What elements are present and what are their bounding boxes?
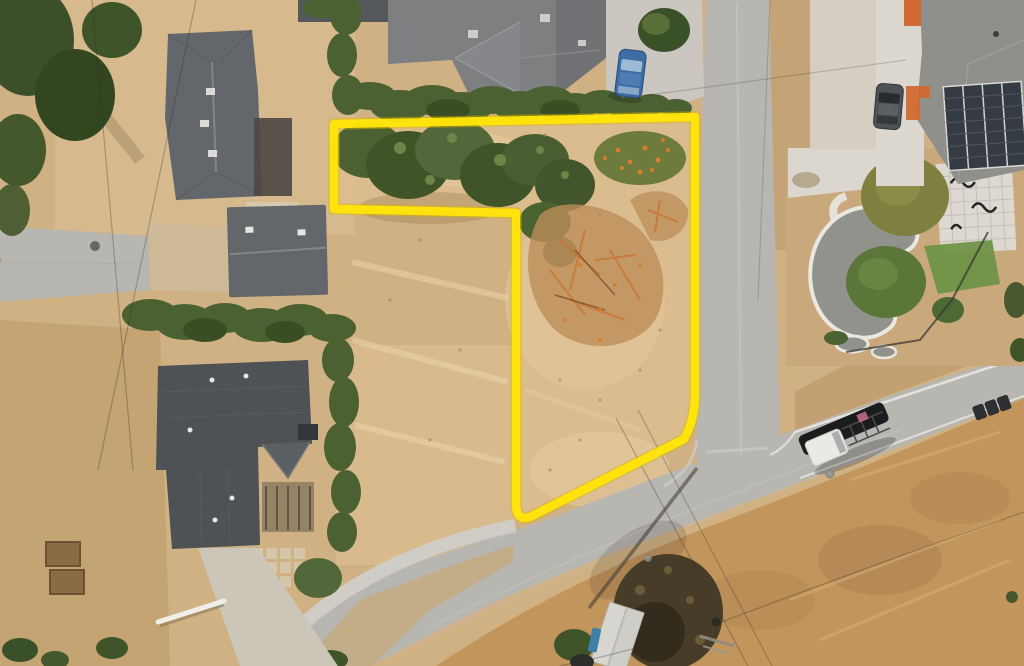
car-roof	[619, 72, 641, 86]
tree	[294, 558, 342, 598]
car-roof	[878, 103, 898, 116]
tree-highlight	[858, 258, 898, 290]
shrub	[824, 331, 848, 345]
field-mottle	[910, 472, 1010, 524]
roof-vent	[993, 31, 999, 37]
front-concrete	[810, 0, 876, 150]
field-mottle	[818, 525, 942, 595]
chimney	[298, 424, 318, 440]
shrub	[96, 637, 128, 659]
rocks	[792, 172, 820, 188]
pole-shadow-dot	[90, 241, 100, 251]
street-left	[0, 222, 232, 302]
house-middle-left	[227, 205, 328, 298]
dirt-bottom-left	[0, 320, 170, 666]
raised-bed	[46, 542, 80, 566]
windshield	[878, 92, 900, 104]
tree-highlight	[642, 13, 670, 35]
flowering-bush	[594, 131, 686, 185]
weed-clump	[1006, 591, 1018, 603]
skylight	[297, 229, 305, 235]
solar-array	[943, 81, 1024, 170]
rear-patio	[254, 118, 292, 196]
raised-bed	[50, 570, 84, 594]
concrete-pad	[148, 222, 232, 292]
car-gray	[873, 83, 904, 130]
aerial-photo	[0, 0, 1024, 666]
shrub	[2, 638, 38, 662]
orange-wall	[904, 0, 921, 26]
skylight	[245, 227, 253, 233]
